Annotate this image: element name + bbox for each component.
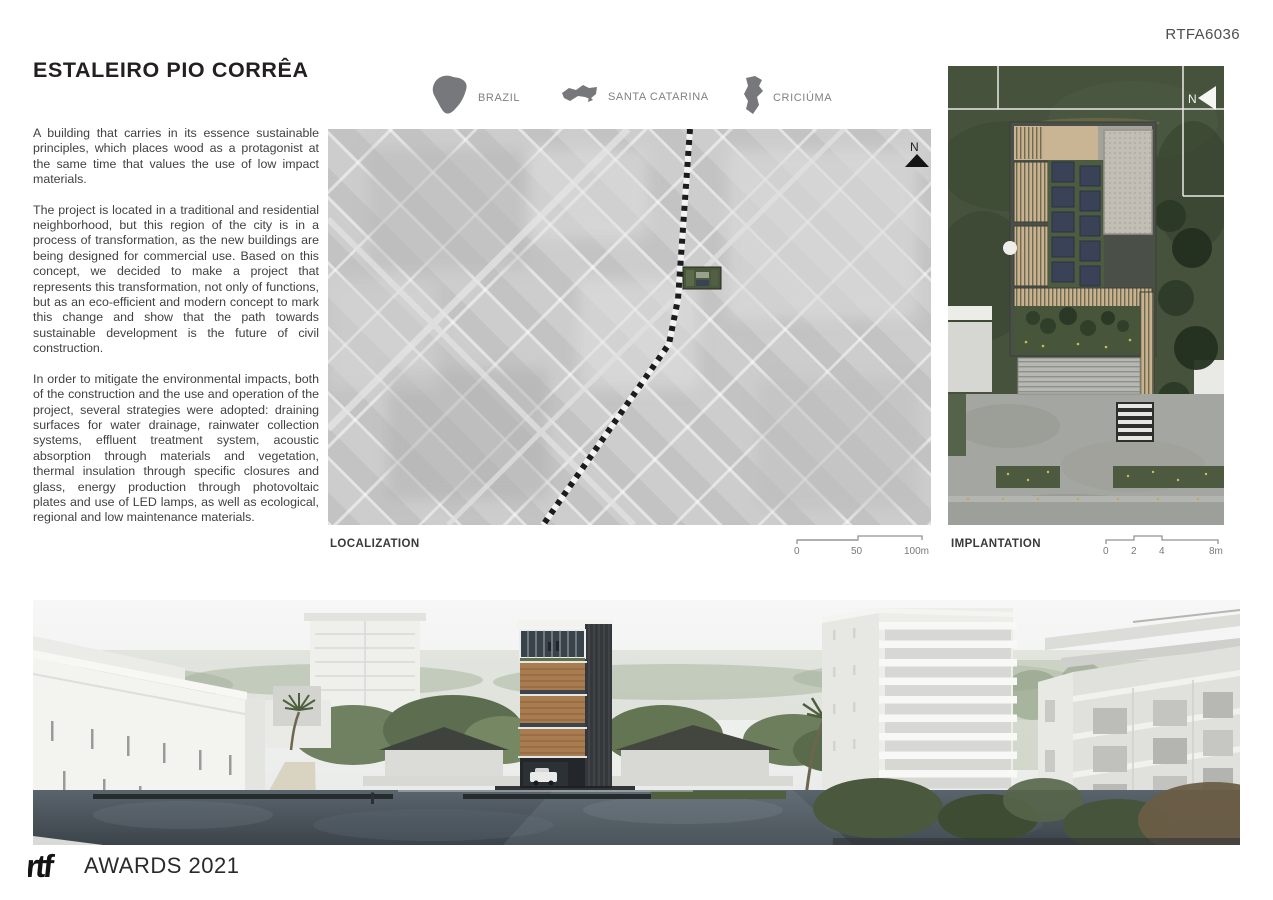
project-description: A building that carries in its essence s… xyxy=(33,126,319,541)
right-tower xyxy=(822,608,1017,792)
localization-scale-bar: 0 50 100m xyxy=(790,531,932,557)
awards-text: AWARDS 2021 xyxy=(84,853,239,879)
svg-text:2: 2 xyxy=(1131,546,1137,557)
balcony-bands xyxy=(879,622,1017,789)
svg-text:N: N xyxy=(910,140,919,154)
location-santa-catarina: SANTA CATARINA xyxy=(560,80,709,113)
paragraph-3: In order to mitigate the environmental i… xyxy=(33,372,319,526)
localization-caption: LOCALIZATION xyxy=(330,538,420,550)
wood-facade xyxy=(518,661,587,758)
paragraph-1: A building that carries in its essence s… xyxy=(33,126,319,188)
location-label: CRICIÚMA xyxy=(773,92,832,104)
svg-text:0: 0 xyxy=(1103,546,1109,557)
paragraph-2: The project is located in a traditional … xyxy=(33,203,319,357)
location-criciuma: CRICIÚMA xyxy=(738,74,832,121)
tonal-patches xyxy=(328,149,918,509)
page-title: ESTALEIRO PIO CORRÊA xyxy=(33,58,309,83)
location-brazil: BRAZIL xyxy=(428,72,520,123)
presentation-board: RTFA6036 ESTALEIRO PIO CORRÊA A building… xyxy=(0,0,1273,900)
svg-text:N: N xyxy=(1188,92,1197,106)
implantation-drawing: N xyxy=(948,66,1224,525)
implantation-plan: N xyxy=(948,66,1224,525)
brazil-map-icon xyxy=(428,72,470,123)
midrise-building xyxy=(304,613,426,713)
localization-map: N xyxy=(328,129,931,525)
submission-code: RTFA6036 xyxy=(1165,26,1240,43)
svg-text:0: 0 xyxy=(794,546,800,557)
pedestrian xyxy=(371,792,375,804)
svg-text:4: 4 xyxy=(1159,546,1165,557)
footer: rtf AWARDS 2021 xyxy=(28,848,239,884)
svg-text:8m: 8m xyxy=(1209,546,1223,557)
site-marker xyxy=(683,267,721,289)
implantation-scale-bar: 0 2 4 8m xyxy=(1098,531,1228,557)
location-label: BRAZIL xyxy=(478,92,520,104)
svg-text:50: 50 xyxy=(851,546,863,557)
implantation-caption: IMPLANTATION xyxy=(951,538,1041,550)
criciuma-map-icon xyxy=(738,74,765,121)
location-label: SANTA CATARINA xyxy=(608,91,709,103)
courtyard xyxy=(1014,306,1140,354)
rtf-logo-icon: rtf xyxy=(28,848,74,884)
santa-catarina-map-icon xyxy=(560,80,600,113)
svg-text:rtf: rtf xyxy=(28,848,56,884)
localization-map-overlay: N xyxy=(328,129,931,525)
street-render xyxy=(33,600,1240,845)
svg-text:100m: 100m xyxy=(904,546,929,557)
